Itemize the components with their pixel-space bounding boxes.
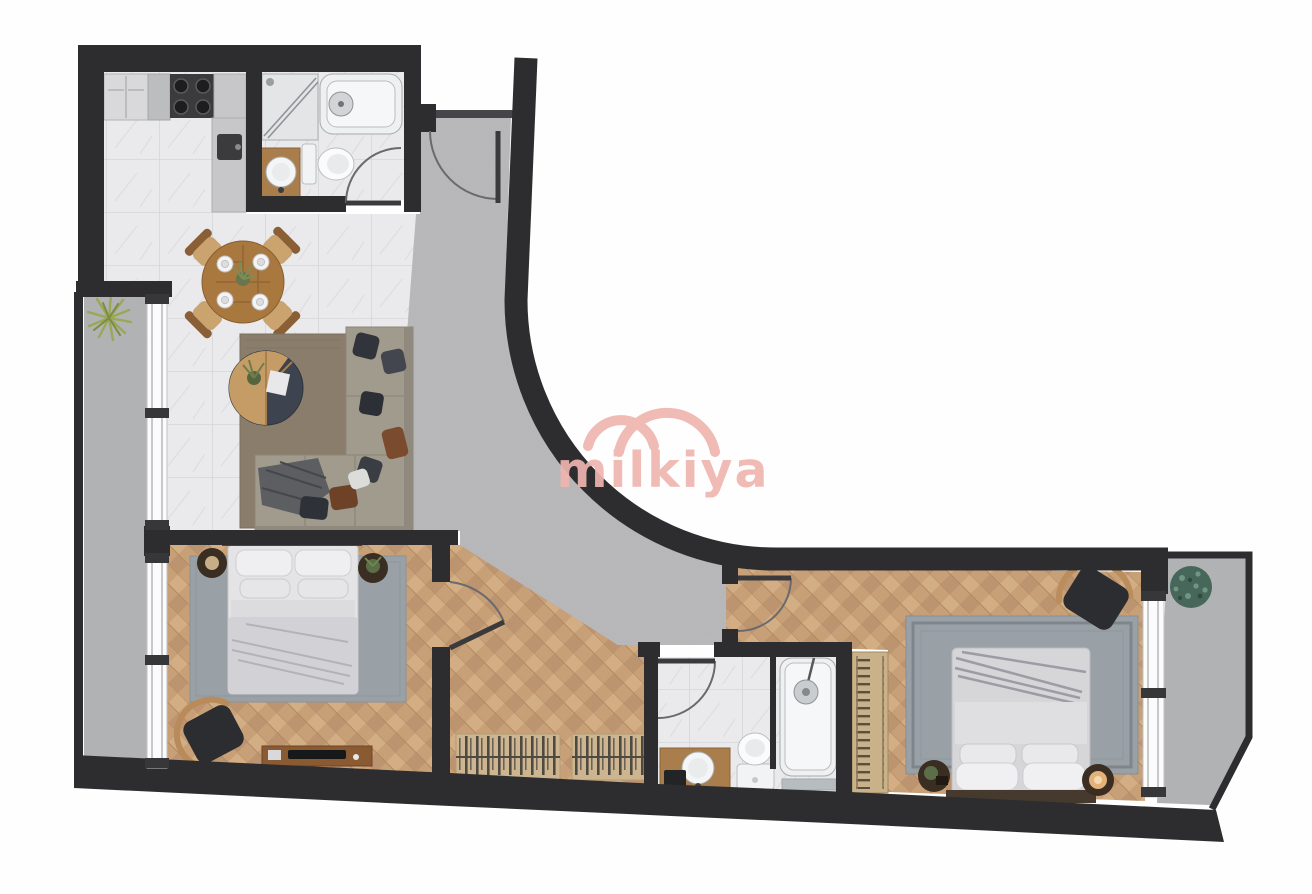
sheet (955, 702, 1087, 744)
bathtub-drain (338, 101, 344, 107)
pillow (960, 744, 1016, 765)
shower-head (266, 78, 274, 86)
wall-bedroom-2-stub-upper (722, 563, 738, 584)
wall-bathroom-2-left (644, 655, 658, 788)
bedroom-1-window (145, 553, 169, 768)
vanity-sink (260, 148, 300, 198)
watermark-text: milkiya (556, 442, 769, 499)
coffee-table (229, 351, 303, 425)
bathtub-with-shower (780, 658, 836, 776)
pillow (295, 550, 351, 576)
wall-bathroom-1-left (246, 45, 262, 212)
tv-console (262, 746, 372, 766)
bed-1 (222, 533, 362, 694)
built-in-wardrobe (852, 652, 888, 793)
watermark: milkiya (556, 413, 769, 499)
kitchen-faucet (235, 144, 241, 150)
nightstand (1082, 764, 1114, 796)
bath-mat (782, 779, 836, 790)
nightstand (358, 553, 388, 583)
living-area (229, 327, 413, 535)
floor-plan-svg: milkiya (0, 0, 1312, 894)
tv (288, 750, 346, 759)
pillow (298, 579, 348, 598)
pillow (1022, 744, 1078, 765)
bedroom-2-window (1141, 591, 1166, 797)
pillow (236, 550, 292, 576)
counter-top (214, 74, 246, 120)
vanity-sink (660, 748, 730, 790)
pillow (1023, 763, 1085, 790)
nightstand (197, 548, 227, 578)
wall-bedroom-1-right-upper (432, 545, 450, 582)
living-room-window (145, 294, 169, 530)
wall-bedroom-2-stub-lower (722, 629, 738, 651)
nightstand (918, 760, 950, 792)
bed-2 (946, 648, 1096, 803)
counter-side (212, 118, 246, 212)
wall-bedroom-1-right-lower (432, 647, 450, 777)
wall-bedroom-1-top (144, 530, 458, 545)
wall-balcony-right-stub (1141, 552, 1168, 594)
wall-bathroom-2-right (836, 650, 852, 794)
pillow (240, 579, 290, 598)
entry-jamb (408, 104, 436, 132)
pillow (956, 763, 1018, 790)
wall-bathroom-1-bottom (246, 196, 346, 212)
balcony-left-rail (74, 292, 83, 762)
wall-left (78, 45, 104, 297)
wall-bathroom-2-divider (770, 657, 776, 769)
potted-plant-right-balcony (1170, 566, 1212, 608)
wall-bathroom-2-top-left (638, 642, 660, 657)
floor-plan-render: milkiya (0, 0, 1312, 894)
corridor-wardrobes (456, 734, 656, 780)
kitchen-cabinet (148, 74, 170, 120)
